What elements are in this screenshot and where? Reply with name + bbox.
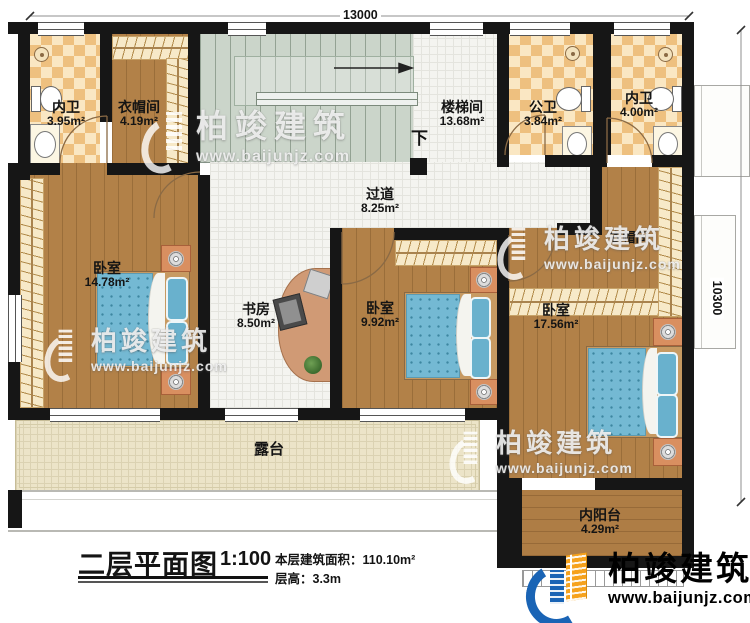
dimension-tick	[26, 12, 34, 20]
room-area: 3.95m²	[47, 115, 85, 129]
dimension-tick	[685, 12, 693, 20]
wall	[497, 228, 509, 490]
room-label-stairwell: 楼梯间 13.68m²	[440, 99, 485, 129]
room-name: 过道	[361, 186, 399, 202]
window	[510, 22, 570, 36]
room-area: 13.68m²	[440, 115, 485, 129]
wall	[497, 22, 509, 167]
sink-basin	[567, 132, 587, 156]
window	[38, 22, 84, 36]
stair-handrail	[256, 92, 418, 106]
room-name: 卧室	[85, 260, 130, 276]
room-name: 公卫	[524, 99, 562, 115]
window	[228, 22, 266, 36]
pillow	[166, 321, 188, 365]
wall	[545, 155, 607, 167]
dimension-top: 13000	[340, 8, 381, 22]
wall	[652, 155, 694, 167]
bed-mattress	[406, 294, 460, 378]
room-name: 衣帽间	[118, 99, 160, 115]
room-label-closet-right: 衣帽间	[609, 231, 648, 246]
floor-area-note: 本层建筑面积：110.10m²	[275, 549, 415, 568]
room-label-balcony: 内阳台 4.29m²	[579, 507, 621, 537]
room-label-corridor: 过道 8.25m²	[361, 186, 399, 216]
sink-basin	[658, 132, 678, 156]
wardrobe-strip	[112, 36, 190, 60]
pillow	[656, 352, 678, 396]
window	[8, 295, 22, 362]
wall	[18, 22, 30, 180]
wall	[497, 478, 522, 562]
room-name: 楼梯间	[440, 99, 485, 115]
stair-down-label: 下	[411, 124, 428, 149]
room-name: 卧室	[361, 300, 399, 316]
room-name: 内卫	[620, 90, 658, 106]
dimension-tick	[737, 26, 745, 34]
room-area: 4.29m²	[579, 523, 621, 537]
wall	[595, 478, 694, 490]
nightstand	[653, 438, 683, 466]
room-area: 17.56m²	[534, 318, 579, 332]
terrace	[15, 420, 480, 492]
wall	[394, 228, 497, 240]
wall	[8, 490, 22, 528]
brand-logo-icon	[526, 552, 602, 620]
nightstand	[470, 267, 498, 293]
lamp-icon	[660, 324, 676, 340]
wardrobe-strip	[509, 288, 660, 316]
lamp-icon	[168, 374, 184, 390]
lamp-icon	[476, 272, 492, 288]
brand-logo: 柏竣建筑 www.baijunjz.com	[526, 552, 750, 620]
room-area: 8.25m²	[361, 202, 399, 216]
shower-head-icon	[658, 47, 673, 62]
floor-height-note: 层高：3.3m	[275, 568, 341, 587]
brand-name: 柏竣建筑	[608, 552, 750, 587]
window	[225, 408, 298, 422]
room-area: 3.84m²	[524, 115, 562, 129]
window	[614, 22, 670, 36]
logo-building-orange-icon	[566, 553, 587, 602]
room-area: 4.00m²	[620, 106, 658, 120]
nightstand	[470, 379, 498, 405]
window	[430, 22, 483, 36]
plant	[304, 356, 322, 374]
wardrobe-strip	[166, 58, 190, 164]
room-label-study: 书房 8.50m²	[237, 301, 275, 331]
shower-head-icon	[565, 46, 580, 61]
room-area: 9.92m²	[361, 316, 399, 330]
sink-basin	[34, 131, 56, 158]
room-label-bath-top-right: 内卫 4.00m²	[620, 90, 658, 120]
title-underline	[78, 581, 268, 583]
bed-sheet	[148, 273, 165, 364]
floor-corridor	[210, 162, 590, 228]
pillow	[470, 297, 491, 339]
lamp-icon	[660, 444, 676, 460]
shower-head-icon	[34, 47, 49, 62]
room-area: 4.19m²	[118, 115, 160, 129]
room-name: 内阳台	[579, 507, 621, 523]
bed-sheet	[456, 294, 471, 376]
room-area: 8.50m²	[237, 317, 275, 331]
wall	[100, 34, 112, 122]
lamp-icon	[476, 384, 492, 400]
room-label-bath-top-left: 内卫 3.95m²	[47, 99, 85, 129]
room-name: 内卫	[47, 99, 85, 115]
wardrobe-strip	[658, 167, 684, 317]
pillow	[656, 394, 678, 438]
floor-plan: 13000 10300 内卫 3.95m² 衣帽间 4.19m² 楼梯间 13.…	[0, 0, 750, 623]
wall	[593, 34, 611, 155]
eaves-band	[8, 490, 505, 532]
wall	[198, 175, 210, 408]
title-underline	[78, 576, 268, 579]
room-label-closet-top-left: 衣帽间 4.19m²	[118, 99, 160, 129]
pillow	[470, 337, 491, 379]
bed-sheet	[642, 348, 657, 434]
wall	[8, 163, 60, 175]
room-name: 露台	[254, 441, 284, 458]
window	[50, 408, 160, 422]
room-area: 14.78m²	[85, 276, 130, 290]
wardrobe-strip	[20, 178, 44, 408]
wardrobe-strip	[395, 240, 497, 266]
room-label-terrace: 露台	[254, 441, 284, 458]
lamp-icon	[168, 251, 184, 267]
pillow	[166, 277, 188, 321]
room-label-bedroom-right: 卧室 17.56m²	[534, 302, 579, 332]
room-label-bath-public: 公卫 3.84m²	[524, 99, 562, 129]
dimension-tick	[737, 498, 745, 506]
room-label-bedroom-left: 卧室 14.78m²	[85, 260, 130, 290]
wall	[107, 163, 200, 175]
logo-building-blue-icon	[550, 570, 564, 604]
toilet-tank	[581, 86, 591, 112]
nightstand	[161, 245, 191, 272]
wall	[330, 228, 342, 408]
room-name: 书房	[237, 301, 275, 317]
wall	[8, 22, 694, 34]
bed-mattress	[588, 348, 646, 436]
window	[360, 408, 465, 422]
wall	[557, 223, 602, 235]
nightstand	[161, 368, 191, 395]
dimension-right: 10300	[710, 278, 724, 319]
plan-scale: 1:100	[220, 548, 271, 571]
room-name: 卧室	[534, 302, 579, 318]
wall	[410, 158, 427, 175]
brand-url: www.baijunjz.com	[608, 589, 750, 608]
room-name: 衣帽间	[609, 231, 648, 246]
side-bay-upper	[694, 85, 750, 177]
nightstand	[653, 318, 683, 346]
room-label-bedroom-mid: 卧室 9.92m²	[361, 300, 399, 330]
wall	[188, 22, 200, 175]
